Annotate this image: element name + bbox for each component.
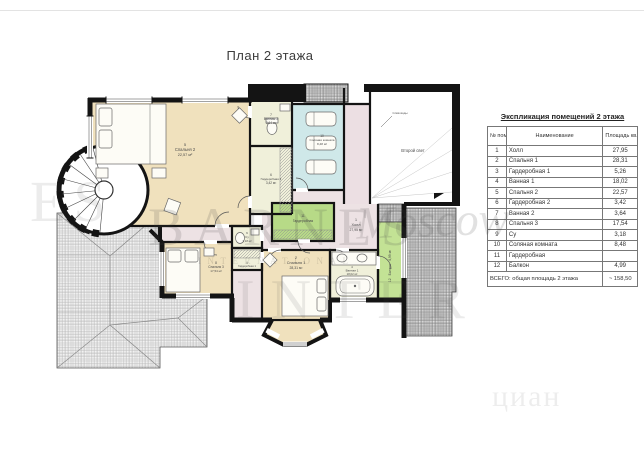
cell-name: Ванная 2 (506, 209, 603, 220)
sink (357, 254, 367, 262)
cell-name: Су (506, 230, 603, 241)
room-label-area: 3,18 м² (242, 239, 251, 243)
window (87, 116, 94, 158)
window (401, 238, 407, 278)
pillow (168, 250, 181, 262)
table-row: 5Спальня 222,57 (488, 188, 638, 199)
window (176, 293, 210, 299)
cell-area: 27,95 (603, 146, 638, 157)
lounger (306, 112, 336, 126)
cell-num: 8 (488, 219, 507, 230)
explication-panel: Экспликация помещений 2 этажа № пом. Наи… (487, 112, 638, 287)
cell-name: Гардеробная 1 (506, 167, 603, 178)
cell-area (603, 251, 638, 262)
window (182, 97, 228, 104)
stair-newel (95, 181, 113, 199)
cell-area: 8,48 (603, 240, 638, 251)
lounger (306, 160, 336, 174)
cell-num: 9 (488, 230, 507, 241)
pillow (185, 250, 198, 262)
cell-num: 2 (488, 156, 507, 167)
room-label-name: Спальня 2 (175, 147, 196, 152)
table-row: 10Соляная комната8,48 (488, 240, 638, 251)
table-row: 9Су3,18 (488, 230, 638, 241)
cell-name: Соляная комната (506, 240, 603, 251)
cell-num: 1 (488, 146, 507, 157)
cell-num: 7 (488, 209, 507, 220)
cell-area: 3,64 (603, 209, 638, 220)
pillow (317, 297, 326, 311)
window (159, 252, 165, 286)
room-label-area: 27,95 м² (350, 228, 364, 232)
table-row: 3Гардеробная 15,26 (488, 167, 638, 178)
hatch-right-deck (404, 208, 456, 336)
room-label-area: 28,31 м² (290, 266, 304, 270)
table-row: 4Ванная 118,02 (488, 177, 638, 188)
cell-name: Балкон (506, 261, 603, 272)
window (340, 297, 366, 303)
cell-num: 6 (488, 198, 507, 209)
cell-area: 4,99 (603, 261, 638, 272)
cell-area: 3,42 (603, 198, 638, 209)
cell-area: 28,31 (603, 156, 638, 167)
table-row: 2Спальня 128,31 (488, 156, 638, 167)
table-row: 7Ванная 23,64 (488, 209, 638, 220)
room-label-name: Гардеробная (293, 219, 314, 223)
bathtub-drain (354, 285, 356, 287)
room-label-name: Гардеробная 1 (238, 264, 256, 268)
nightstand (152, 168, 166, 178)
room-label-number: 11 (301, 214, 305, 218)
cell-name: Спальня 3 (506, 219, 603, 230)
cell-num: 11 (488, 251, 507, 262)
nightstand (204, 248, 214, 256)
cell-area: 17,54 (603, 219, 638, 230)
sink (251, 229, 259, 235)
cell-num: 12 (488, 261, 507, 272)
cell-num: 4 (488, 177, 507, 188)
table-row: 1Холл27,95 (488, 146, 638, 157)
table-total-row: ВСЕГО: общая площадь 2 этажа ~ 158,50 (488, 272, 638, 287)
cell-name: Ванная 1 (506, 177, 603, 188)
room-label-number: 1 (355, 218, 357, 222)
explication-table: № пом. Наименование Площадь кв.м. 1Холл2… (487, 126, 638, 287)
table-row: 11Гардеробная (488, 251, 638, 262)
cell-name: Гардеробная 2 (506, 198, 603, 209)
cell-num: 3 (488, 167, 507, 178)
room-label-area: 22,57 м² (178, 153, 193, 157)
room-label-area: 3,42 м² (266, 181, 276, 185)
room-hall-west-arm (160, 226, 232, 242)
table-row: 8Спальня 317,54 (488, 219, 638, 230)
hatch-above-balcony (378, 204, 404, 222)
room-label-number: 2 (295, 256, 297, 260)
cell-name: Гардеробная (506, 251, 603, 262)
table-row: 6Гардеробная 23,42 (488, 198, 638, 209)
cell-num: 5 (488, 188, 507, 199)
wardrobe-shelves (234, 250, 260, 258)
cell-num: 10 (488, 240, 507, 251)
header-area: Площадь кв.м. (603, 127, 638, 146)
explication-title: Экспликация помещений 2 этажа (487, 112, 638, 121)
table-row: 12Балкон4,99 (488, 261, 638, 272)
cell-area: 18,02 (603, 177, 638, 188)
hatch-top-strip (304, 84, 348, 102)
pillow (317, 279, 326, 293)
floor-plan-page: План 2 этажа (0, 0, 644, 455)
sink (337, 254, 347, 262)
cell-name: Спальня 2 (506, 188, 603, 199)
room-hall-south-arm (232, 270, 262, 320)
room-label-area: 18,02 м² (347, 272, 358, 276)
total-label: ВСЕГО: общая площадь 2 этажа (488, 272, 603, 287)
cell-area: 22,57 (603, 188, 638, 199)
room-label-area: 3,64 м² (266, 121, 276, 125)
cell-name: Спальня 1 (506, 156, 603, 167)
room-label-area: 17,54 м² (210, 269, 221, 273)
room-gallery (344, 104, 370, 204)
wardrobe-shelves (280, 148, 292, 212)
roof-note-label: Слив воды (392, 111, 407, 115)
header-name: Наименование (506, 127, 603, 146)
pillow (99, 108, 112, 126)
wardrobe-shelves (274, 230, 332, 239)
cell-area: 3,18 (603, 230, 638, 241)
sink (280, 104, 290, 111)
cell-name: Холл (506, 146, 603, 157)
table-header-row: № пом. Наименование Площадь кв.м. (488, 127, 638, 146)
nightstand (96, 168, 108, 178)
total-value: ~ 158,50 (603, 272, 638, 287)
room-label-area: 8,48 м² (317, 142, 327, 146)
window (106, 97, 152, 104)
cell-area: 5,26 (603, 167, 638, 178)
pillow (99, 130, 112, 148)
room-label-name: Холл (352, 223, 361, 227)
room-label-name: Спальня 1 (287, 261, 305, 265)
second-light-label: Второй свет (401, 148, 424, 153)
header-num: № пом. (488, 127, 507, 146)
